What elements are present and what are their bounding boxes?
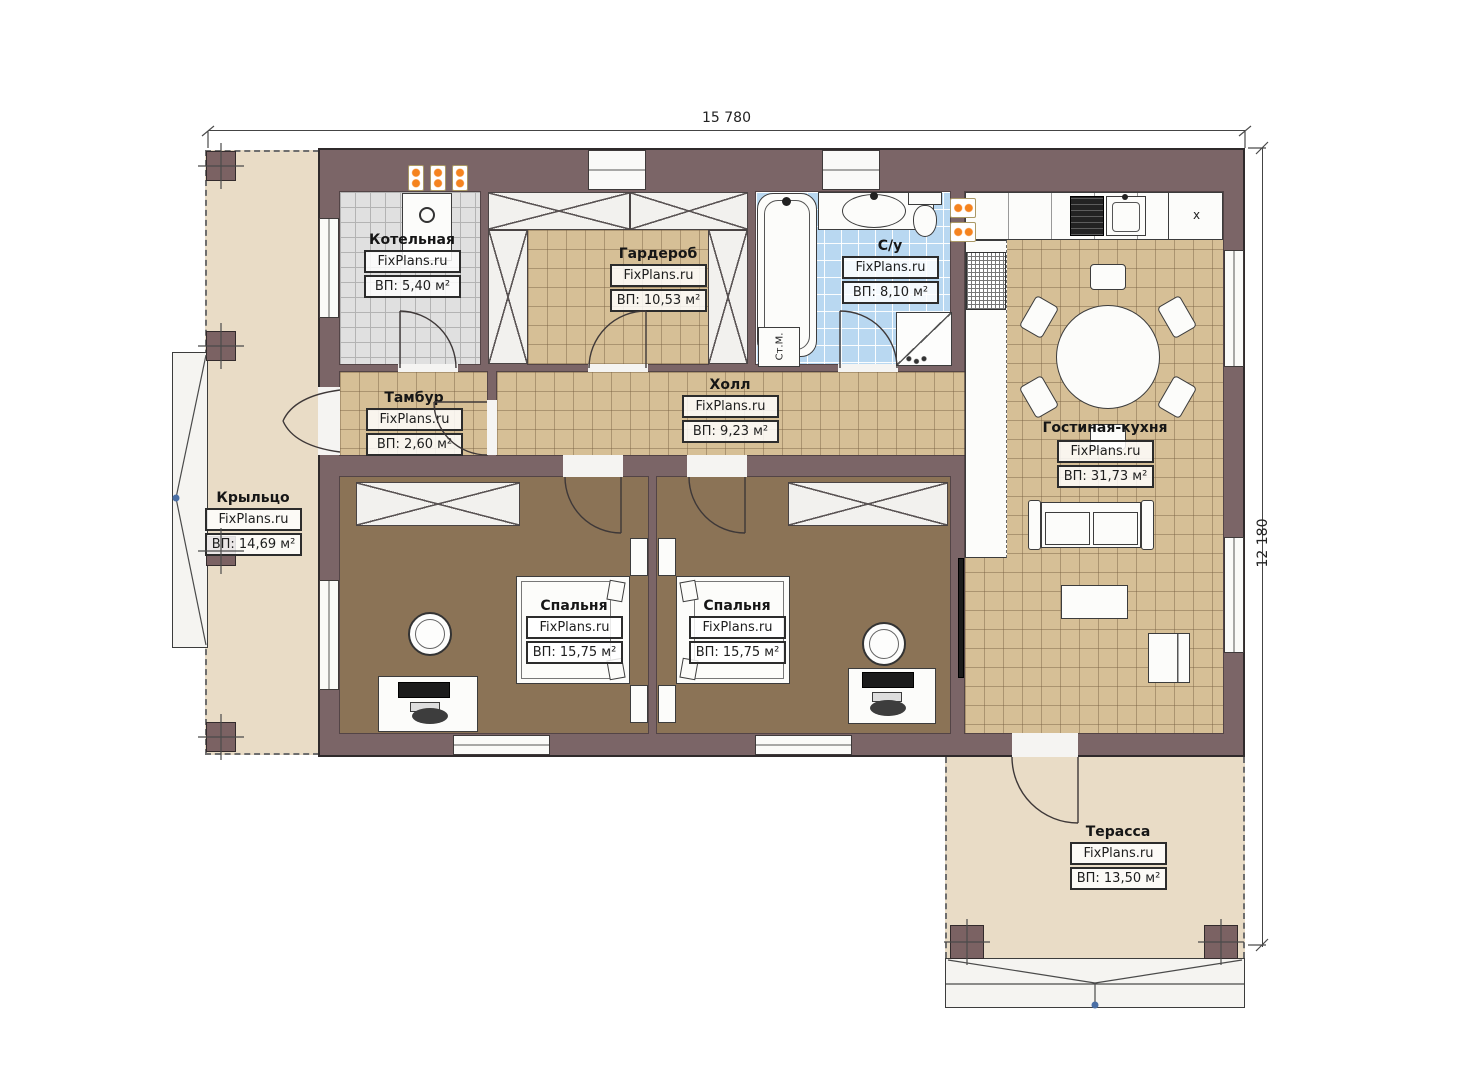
sofa-cushion [1045, 512, 1090, 545]
terrace-post [1204, 925, 1238, 959]
porch-post [206, 331, 236, 361]
watermark: FixPlans.ru [1057, 440, 1154, 463]
door-opening [588, 364, 648, 372]
window [1224, 537, 1244, 653]
terrace-steps [945, 958, 1245, 1008]
closet [630, 192, 748, 230]
radiator-icon [408, 165, 424, 191]
watermark: FixPlans.ru [205, 508, 302, 531]
room-label-wardrobe: Гардероб [598, 246, 718, 262]
window [588, 150, 646, 190]
radiator-icon [452, 165, 468, 191]
coffee-table [1061, 585, 1128, 619]
window [1224, 250, 1244, 367]
room-label-bathroom: С/у [845, 238, 935, 254]
entry-door-opening [318, 387, 340, 455]
room-area-bathroom: ВП: 8,10 м² [842, 281, 939, 304]
window [453, 735, 550, 755]
radiator-icon [430, 165, 446, 191]
window [319, 218, 339, 318]
toilet-bowl [913, 205, 937, 237]
plant-pot-inner [869, 629, 899, 659]
room-area-vestibule: ВП: 2,60 м² [366, 433, 463, 456]
door-opening [487, 400, 497, 455]
porch-post [206, 151, 236, 181]
monitor [398, 682, 450, 698]
dining-table [1056, 305, 1160, 409]
room-label-bedroom1: Спальня [514, 598, 634, 614]
radiator-icon [950, 222, 976, 242]
closet [356, 482, 520, 526]
kitchen-vent-box: x [1168, 192, 1223, 240]
washing-machine: Ст.М. [758, 327, 800, 367]
room-area-bedroom1: ВП: 15,75 м² [526, 641, 623, 664]
watermark: FixPlans.ru [682, 395, 779, 418]
door-opening [563, 455, 623, 477]
washing-machine-label: Ст.М. [775, 330, 786, 364]
terrace-post [950, 925, 984, 959]
room-area-living: ВП: 31,73 м² [1057, 465, 1154, 488]
closet [488, 192, 630, 230]
room-area-terrace: ВП: 13,50 м² [1070, 867, 1167, 890]
dining-chair [1090, 264, 1126, 290]
closet [488, 230, 528, 364]
monitor [862, 672, 914, 688]
porch-post [206, 722, 236, 752]
kitchen-sink-faucet [1122, 194, 1128, 200]
plant-pot-inner [415, 619, 445, 649]
window [755, 735, 852, 755]
room-area-bedroom2: ВП: 15,75 м² [689, 641, 786, 664]
desk-chair [412, 708, 448, 724]
room-label-boiler: Котельная [352, 232, 472, 248]
floor-plan-canvas: 15 780 12 180 [0, 0, 1473, 1080]
watermark: FixPlans.ru [1070, 842, 1167, 865]
room-label-terrace: Терасса [1058, 824, 1178, 840]
kitchen-vent-label: x [1169, 208, 1224, 222]
room-label-porch: Крыльцо [193, 490, 313, 506]
kitchen-sink-basin [1112, 202, 1140, 232]
door-opening [838, 364, 898, 372]
bathtub-faucet [782, 197, 791, 206]
room-label-bedroom2: Спальня [677, 598, 797, 614]
room-area-wardrobe: ВП: 10,53 м² [610, 289, 707, 312]
boiler-dial [419, 207, 435, 223]
dimension-width-label: 15 780 [208, 110, 1245, 126]
radiator-icon [950, 198, 976, 218]
shower [896, 312, 952, 366]
room-label-vestibule: Тамбур [354, 390, 474, 406]
sofa-cushion [1093, 512, 1138, 545]
closet [788, 482, 948, 526]
watermark: FixPlans.ru [610, 264, 707, 287]
dimension-width-line [208, 130, 1245, 131]
watermark: FixPlans.ru [366, 408, 463, 431]
window [319, 580, 339, 690]
stove [1070, 196, 1104, 236]
watermark: FixPlans.ru [526, 616, 623, 639]
nightstand [630, 538, 648, 576]
terrace-door-opening [1012, 733, 1078, 757]
nightstand [658, 685, 676, 723]
room-label-living: Гостиная-кухня [1030, 420, 1180, 436]
desk-chair [870, 700, 906, 716]
room-area-porch: ВП: 14,69 м² [205, 533, 302, 556]
room-label-hall: Холл [670, 377, 790, 393]
toilet-cistern [908, 192, 942, 205]
room-area-hall: ВП: 9,23 м² [682, 420, 779, 443]
dimension-height-label: 12 180 [1255, 508, 1271, 578]
sofa-armrest [1028, 500, 1041, 550]
room-area-boiler: ВП: 5,40 м² [364, 275, 461, 298]
door-opening [398, 364, 458, 372]
watermark: FixPlans.ru [364, 250, 461, 273]
cooktop [966, 252, 1006, 310]
porch-area [205, 150, 319, 755]
nightstand [630, 685, 648, 723]
window [822, 150, 880, 190]
tv-on-wall [958, 558, 964, 678]
door-opening [687, 455, 747, 477]
watermark: FixPlans.ru [842, 256, 939, 279]
sofa-armrest [1141, 500, 1154, 550]
nightstand [658, 538, 676, 576]
sink-faucet [870, 192, 878, 200]
watermark: FixPlans.ru [689, 616, 786, 639]
tv-stand [1148, 633, 1190, 683]
